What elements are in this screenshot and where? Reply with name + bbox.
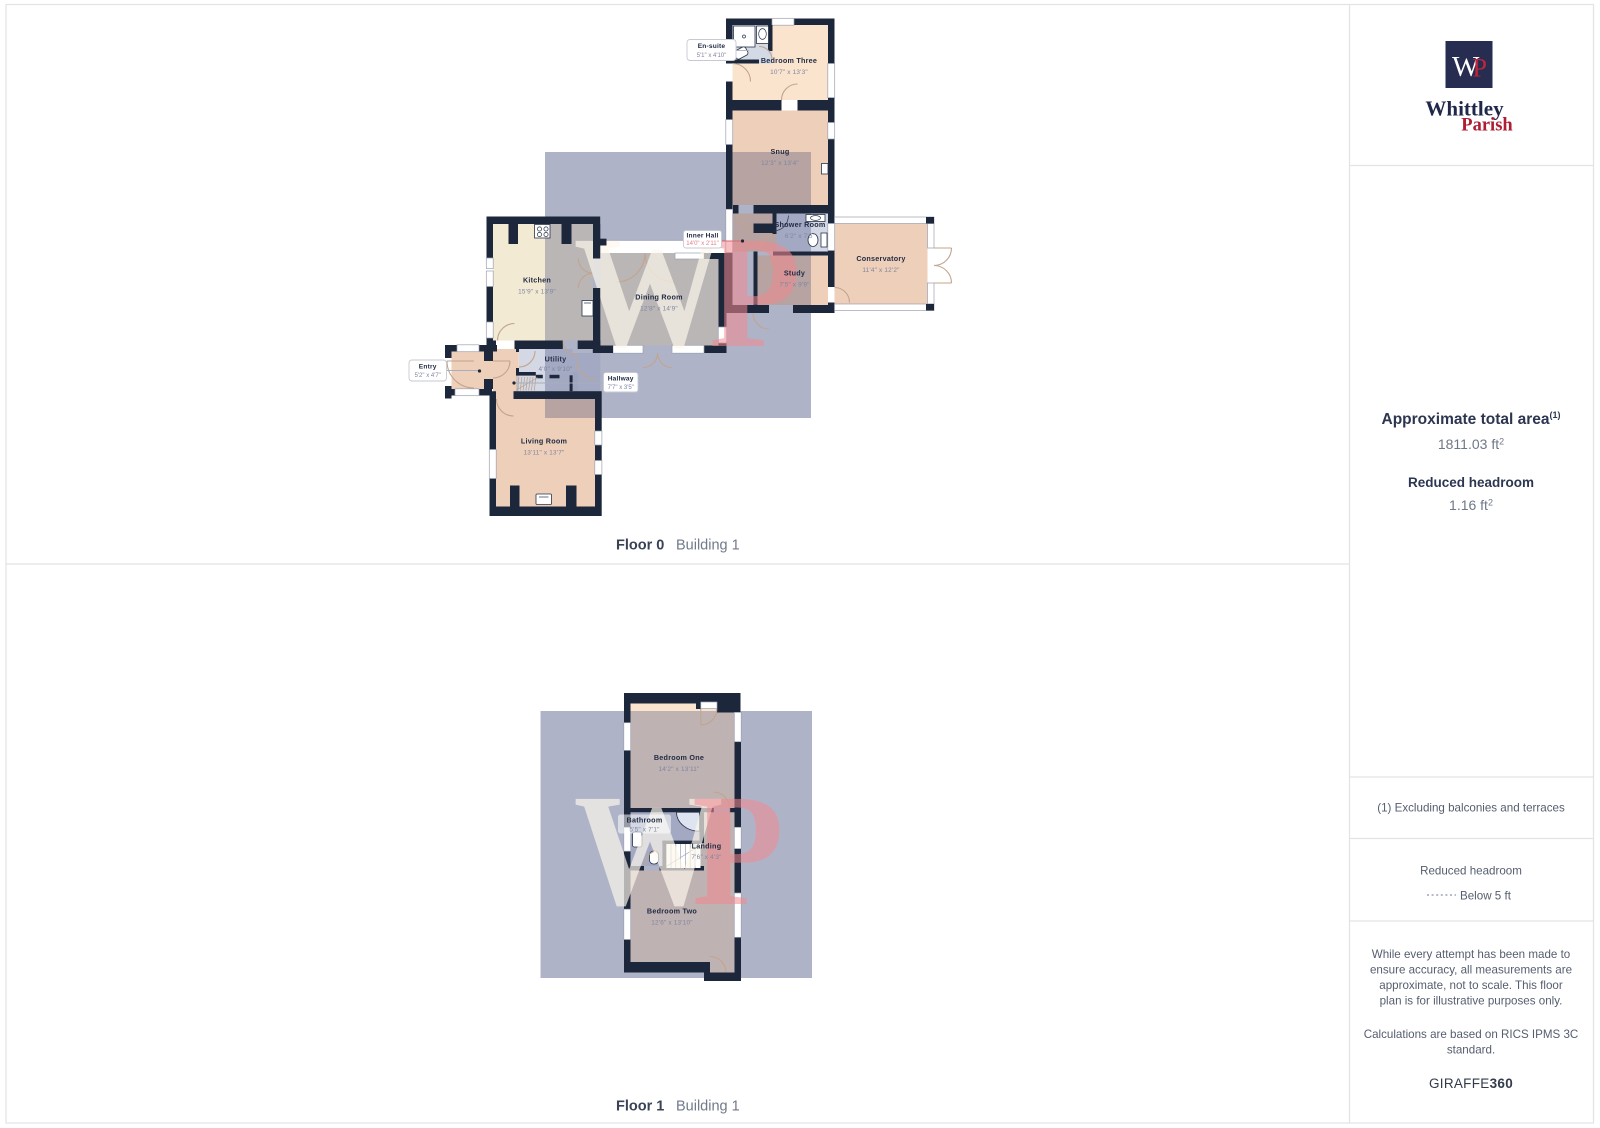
svg-text:Snug: Snug — [771, 147, 790, 156]
svg-text:Hallway: Hallway — [608, 376, 634, 383]
svg-text:Inner Hall: Inner Hall — [686, 233, 718, 240]
svg-text:10'7" x 13'3": 10'7" x 13'3" — [770, 69, 808, 76]
svg-text:Bedroom Two: Bedroom Two — [647, 907, 697, 916]
svg-text:Floor 0: Floor 0 — [616, 538, 664, 554]
svg-text:14'2" x 13'11": 14'2" x 13'11" — [659, 766, 700, 773]
svg-text:(1) Excluding balconies and te: (1) Excluding balconies and terraces — [1377, 802, 1565, 815]
svg-text:Dining Room: Dining Room — [635, 293, 682, 302]
svg-text:P: P — [709, 203, 801, 381]
svg-text:7'6" x 4'3": 7'6" x 4'3" — [691, 854, 721, 861]
svg-text:Shower Room: Shower Room — [774, 220, 825, 229]
svg-text:13'11" x 13'7": 13'11" x 13'7" — [524, 450, 565, 457]
svg-text:Entry: Entry — [419, 364, 437, 371]
svg-text:7'5" x 9'9": 7'5" x 9'9" — [779, 282, 809, 289]
svg-text:Building 1: Building 1 — [676, 1099, 740, 1115]
svg-text:1.16 ft2: 1.16 ft2 — [1449, 497, 1493, 513]
svg-text:Reduced headroom: Reduced headroom — [1408, 475, 1534, 490]
svg-text:6'2" x 7'5": 6'2" x 7'5" — [785, 233, 815, 240]
svg-text:Living Room: Living Room — [521, 437, 567, 446]
svg-text:Conservatory: Conservatory — [856, 254, 905, 263]
svg-text:Approximate total area(1): Approximate total area(1) — [1382, 410, 1561, 428]
svg-text:Calculations are based on RICS: Calculations are based on RICS IPMS 3C — [1364, 1028, 1579, 1041]
svg-text:12'6" x 13'10": 12'6" x 13'10" — [651, 920, 692, 927]
svg-text:approximate, not to scale. Thi: approximate, not to scale. This floor — [1379, 979, 1563, 992]
svg-text:Kitchen: Kitchen — [523, 276, 551, 285]
svg-text:12'3" x 13'4": 12'3" x 13'4" — [761, 160, 799, 167]
svg-text:Reduced headroom: Reduced headroom — [1420, 865, 1522, 878]
svg-text:14'0" x 2'11": 14'0" x 2'11" — [686, 241, 718, 247]
svg-text:P: P — [1473, 54, 1487, 83]
svg-text:ensure accuracy, all measureme: ensure accuracy, all measurements are — [1370, 964, 1572, 977]
svg-text:Study: Study — [784, 269, 805, 278]
svg-text:Bedroom Three: Bedroom Three — [761, 56, 817, 65]
svg-text:5'5" x 7'1": 5'5" x 7'1" — [629, 827, 659, 834]
svg-text:1811.03 ft2: 1811.03 ft2 — [1438, 436, 1504, 452]
svg-text:While every attempt has been m: While every attempt has been made to — [1372, 948, 1571, 961]
svg-text:4'0" x 9'10": 4'0" x 9'10" — [539, 366, 573, 373]
svg-text:Parish: Parish — [1461, 116, 1513, 136]
svg-text:5'1" x 4'10": 5'1" x 4'10" — [697, 53, 727, 59]
svg-text:Building 1: Building 1 — [676, 538, 740, 554]
svg-text:GIRAFFE360: GIRAFFE360 — [1429, 1076, 1513, 1091]
svg-text:12'8" x 14'9": 12'8" x 14'9" — [640, 306, 678, 313]
svg-text:plan is for illustrative purpo: plan is for illustrative purposes only. — [1380, 995, 1563, 1008]
svg-text:Landing: Landing — [692, 842, 722, 851]
svg-text:7'7" x 3'5": 7'7" x 3'5" — [608, 385, 634, 391]
svg-text:Below 5 ft: Below 5 ft — [1460, 890, 1512, 903]
svg-text:15'9" x 13'9": 15'9" x 13'9" — [518, 289, 556, 296]
svg-text:Bedroom One: Bedroom One — [654, 753, 704, 762]
svg-text:En-suite: En-suite — [698, 43, 726, 50]
svg-text:Utility: Utility — [545, 355, 567, 364]
svg-text:5'2" x 4'7": 5'2" x 4'7" — [415, 373, 441, 379]
svg-text:standard.: standard. — [1447, 1044, 1495, 1057]
svg-text:11'4" x 12'2": 11'4" x 12'2" — [862, 267, 899, 274]
svg-text:Floor 1: Floor 1 — [616, 1099, 664, 1115]
svg-text:Bathroom: Bathroom — [627, 816, 663, 825]
